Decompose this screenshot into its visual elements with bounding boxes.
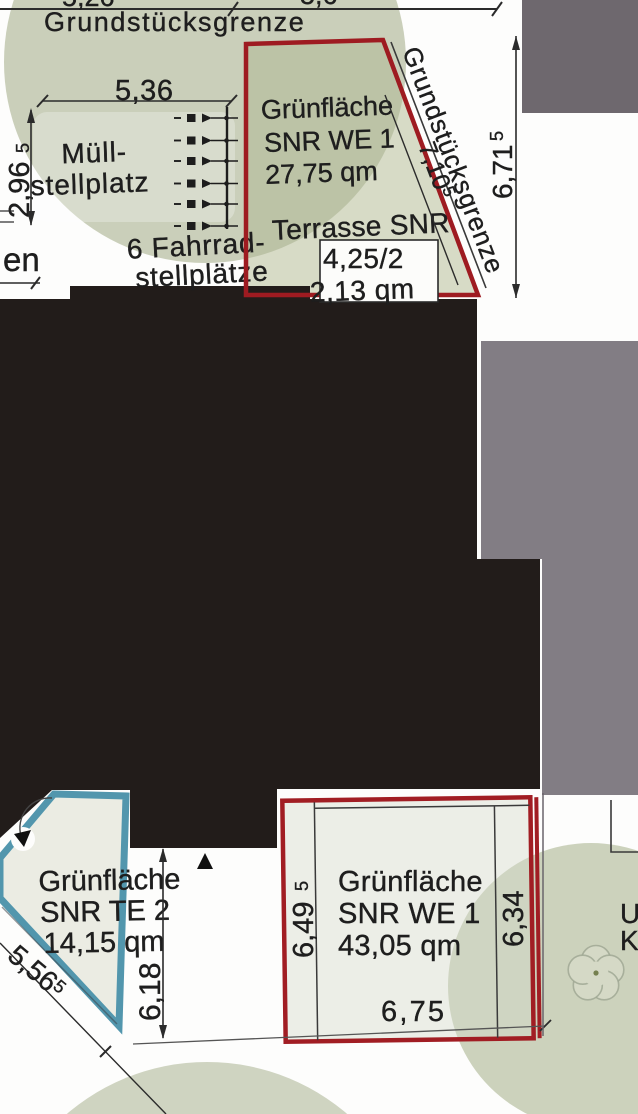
svg-text:5,6: 5,6 <box>300 0 338 10</box>
svg-text:6,34: 6,34 <box>498 891 530 947</box>
svg-text:5,36: 5,36 <box>115 75 173 107</box>
svg-text:5: 5 <box>13 143 33 153</box>
svg-text:6,18: 6,18 <box>134 963 167 1021</box>
svg-text:14,15 qm: 14,15 qm <box>43 926 164 960</box>
svg-text:Grünfläche: Grünfläche <box>260 90 393 125</box>
svg-text:SNR WE 1: SNR WE 1 <box>338 898 481 930</box>
svg-text:en: en <box>3 241 40 278</box>
svg-text:5: 5 <box>487 131 507 141</box>
svg-text:6,71: 6,71 <box>487 145 518 200</box>
svg-text:SNR TE 2: SNR TE 2 <box>40 895 171 929</box>
svg-text:Grundstücksgrenze: Grundstücksgrenze <box>44 7 305 37</box>
svg-text:27,75 qm: 27,75 qm <box>265 156 379 190</box>
svg-text:2,13 qm: 2,13 qm <box>309 273 415 308</box>
svg-text:43,05 qm: 43,05 qm <box>338 930 461 962</box>
svg-text:Grünfläche: Grünfläche <box>338 866 483 898</box>
svg-text:5: 5 <box>292 881 312 891</box>
svg-text:Müll-: Müll- <box>61 136 128 169</box>
svg-text:stellplatz: stellplatz <box>30 166 150 201</box>
svg-text:SNR WE 1: SNR WE 1 <box>264 123 395 158</box>
svg-text:Grünfläche: Grünfläche <box>38 864 180 898</box>
svg-text:4,25/2: 4,25/2 <box>323 243 404 274</box>
svg-text:6,49: 6,49 <box>288 902 320 958</box>
svg-text:6,75: 6,75 <box>381 996 446 1028</box>
svg-text:K: K <box>620 925 638 956</box>
